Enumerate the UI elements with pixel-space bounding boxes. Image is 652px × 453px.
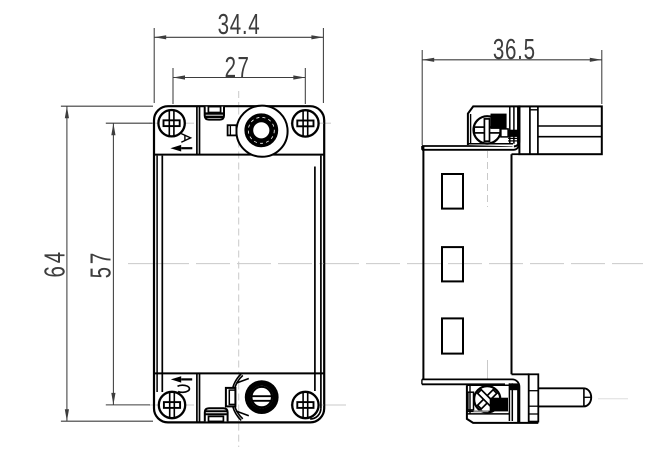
svg-text:27: 27 bbox=[225, 53, 251, 84]
svg-text:34.4: 34.4 bbox=[218, 10, 261, 41]
svg-text:57: 57 bbox=[86, 250, 117, 279]
svg-text:36.5: 36.5 bbox=[493, 35, 536, 66]
svg-text:64: 64 bbox=[40, 249, 71, 278]
